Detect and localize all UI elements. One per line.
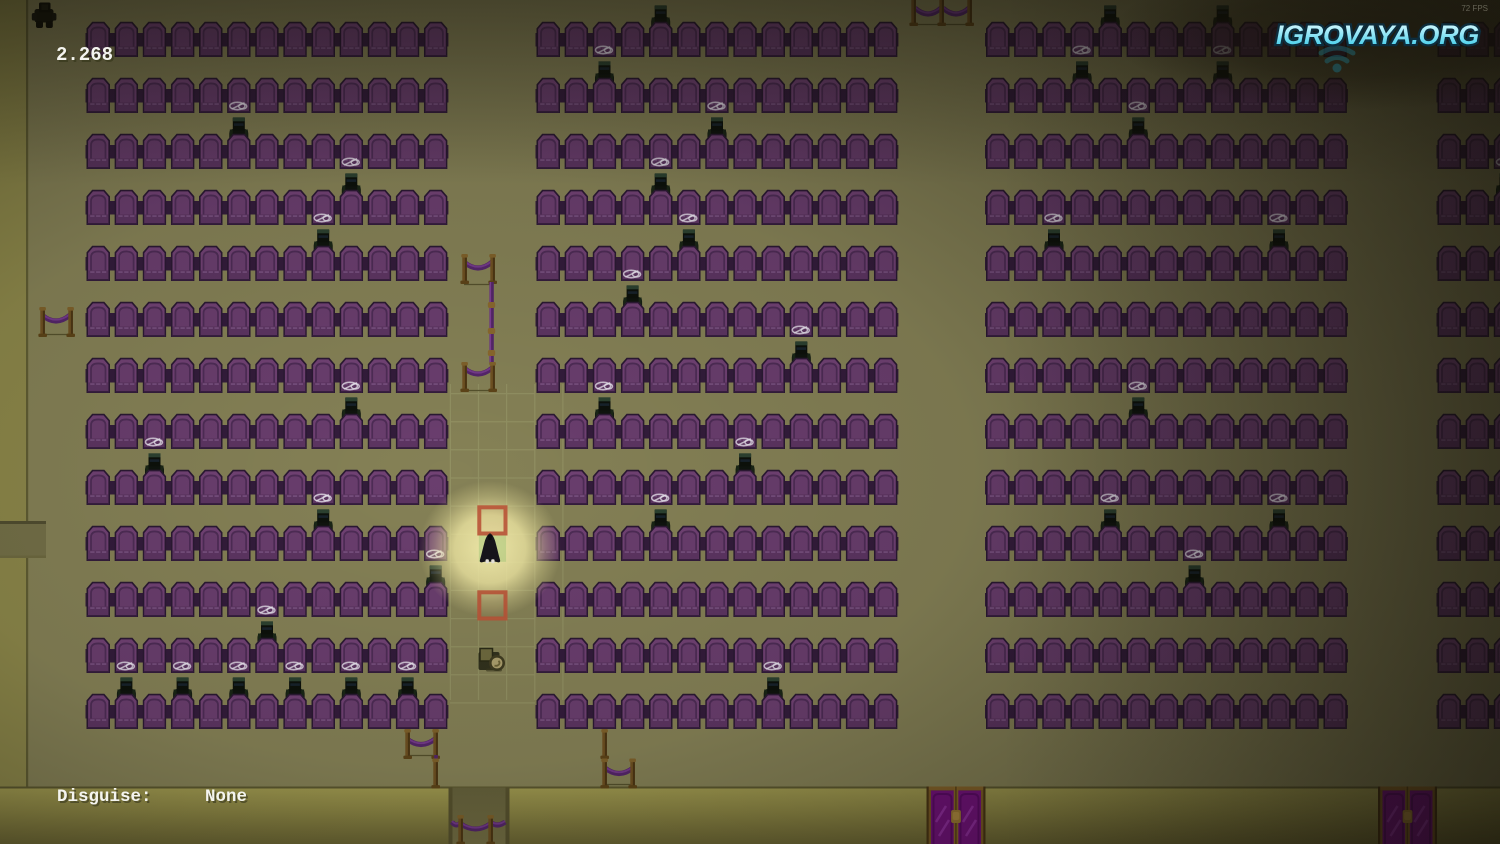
svg-text:IGROVAYA.ORG: IGROVAYA.ORG xyxy=(1276,20,1479,50)
svg-text:2.268: 2.268 xyxy=(56,44,113,66)
svg-text:None: None xyxy=(205,787,247,807)
svg-text:72 FPS: 72 FPS xyxy=(1461,4,1488,13)
svg-text:Disguise:: Disguise: xyxy=(57,787,152,807)
